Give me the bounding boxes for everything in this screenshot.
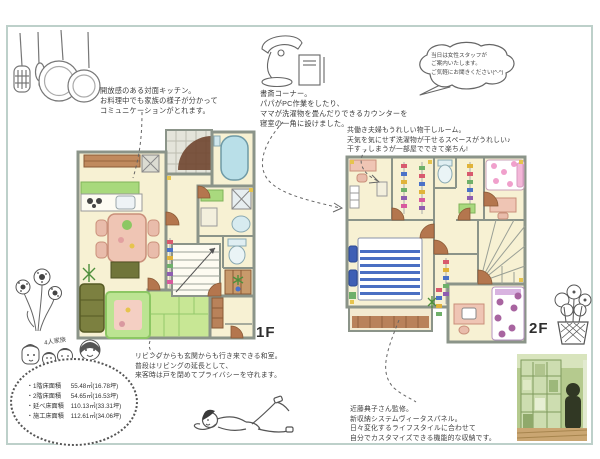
study-note: 書斎コーナー。 パパがPC作業をしたり、 ママが洗濯物を畳んだりできるカウンター… <box>260 89 420 129</box>
label-1f: 1F <box>256 324 276 341</box>
hall-storage <box>225 270 251 294</box>
desk-lamp-icon <box>257 29 327 89</box>
dandelion-flowers-icon <box>8 263 62 335</box>
kitchen-note: 開放感のある対面キッチン。 お料理中でも家族の様子が分かって コミュニケーション… <box>100 86 250 116</box>
floor-area-table: ・1階床面積 55.48㎡(16.78坪) ・2階床面積 54.65㎡(16.5… <box>10 358 138 446</box>
area-row-1f: ・1階床面積 55.48㎡(16.78坪) <box>27 382 121 392</box>
area-row-total: ・延べ床面積 110.13㎡(33.31坪) <box>27 402 121 412</box>
laundry-note: 共働き夫婦もうれしい物干しルーム。 天気を気にせず洗濯物が干せるスペースがうれし… <box>347 126 527 155</box>
toilet-1f <box>228 239 246 264</box>
washitsu-note: リビングからも玄関からも行き来できる和室。 普段はリビングの延長として、 来客時… <box>135 352 315 381</box>
floor-plan-1f <box>75 128 256 341</box>
floorplan-flyer-page: 当日は女性スタッフが ご案内いたします。 ご気軽にお聞きください(^-^) 開放… <box>0 0 600 459</box>
exercising-person-icon <box>186 394 296 444</box>
storage-note: 近藤典子さん監修。 新収納システムヴィータスパネル。 日々変化するライフスタイル… <box>350 405 525 443</box>
area-row-2f: ・2階床面積 54.65㎡(16.53坪) <box>27 392 121 402</box>
kitchen-utensils-icon <box>12 28 104 110</box>
master-bedroom <box>349 238 422 300</box>
area-row-construction: ・施工床面積 112.61㎡(34.06坪) <box>27 412 121 422</box>
porch-tiles <box>166 130 212 174</box>
storage-photo <box>517 354 587 441</box>
balcony <box>349 307 432 331</box>
staff-bubble-note: 当日は女性スタッフが ご案内いたします。 ご気軽にお聞きください(^-^) <box>431 52 503 77</box>
floor-plan-2f <box>344 154 528 348</box>
toilet-2f <box>438 160 452 183</box>
label-2f: 2F <box>529 320 549 337</box>
potted-plant-icon <box>550 284 596 348</box>
